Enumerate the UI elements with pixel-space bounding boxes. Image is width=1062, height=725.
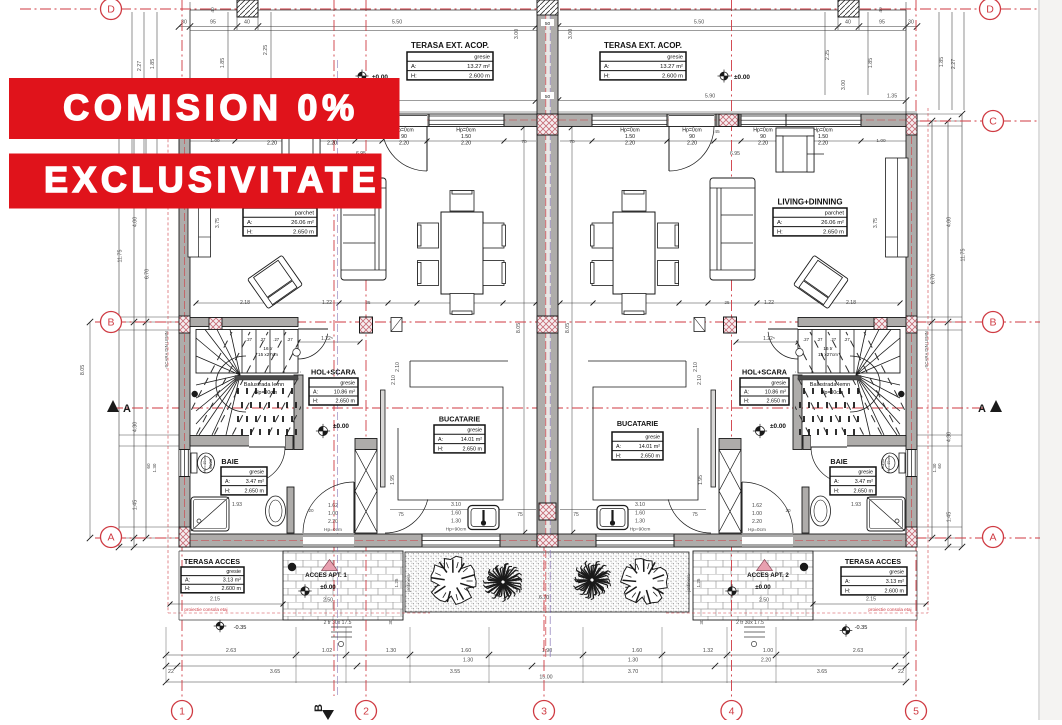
svg-text:1.50: 1.50	[818, 134, 828, 140]
svg-text:1.60: 1.60	[632, 648, 642, 654]
svg-text:75: 75	[398, 512, 404, 518]
svg-text:A:: A:	[616, 444, 621, 450]
svg-text:22: 22	[168, 669, 174, 675]
svg-text:40: 40	[845, 20, 851, 26]
svg-text:30: 30	[699, 619, 704, 624]
svg-text:parchet: parchet	[295, 211, 315, 217]
svg-text:2.20: 2.20	[758, 140, 768, 146]
svg-text:3.00: 3.00	[841, 80, 847, 90]
svg-text:3.75: 3.75	[873, 218, 879, 228]
svg-text:Hp=90cm: Hp=90cm	[821, 390, 843, 396]
svg-text:.27: .27	[246, 337, 252, 342]
svg-text:14.01 m²: 14.01 m²	[461, 437, 482, 443]
svg-text:1.00: 1.00	[763, 648, 773, 654]
svg-text:H:: H:	[604, 73, 610, 79]
svg-text:2.15: 2.15	[210, 597, 220, 603]
svg-text:H:: H:	[313, 398, 318, 404]
svg-text:.27: .27	[287, 337, 293, 342]
svg-text:1.95: 1.95	[390, 475, 396, 485]
svg-text:15 x27cm: 15 x27cm	[818, 352, 838, 357]
svg-text:gresie: gresie	[249, 470, 264, 476]
svg-text:Hp=0cm: Hp=0cm	[813, 128, 832, 134]
svg-text:gresie: gresie	[667, 55, 683, 61]
svg-text:90: 90	[689, 134, 695, 140]
svg-text:1.85: 1.85	[939, 57, 945, 67]
svg-text:3.13 m²: 3.13 m²	[886, 579, 904, 585]
svg-text:gresie: gresie	[467, 428, 482, 434]
svg-text:TERASA ACCES: TERASA ACCES	[845, 557, 901, 566]
svg-text:5: 5	[913, 706, 919, 718]
svg-text:90: 90	[760, 134, 766, 140]
svg-text:3.10: 3.10	[451, 502, 461, 508]
svg-text:2.63: 2.63	[853, 648, 863, 654]
svg-text:H:: H:	[777, 229, 783, 235]
svg-text:TERASA EXT. ACOP.: TERASA EXT. ACOP.	[604, 41, 682, 50]
svg-text:A:: A:	[438, 437, 443, 443]
svg-text:2.20: 2.20	[761, 658, 771, 664]
svg-text:2.15: 2.15	[866, 597, 876, 603]
svg-text:HOL+SCARA: HOL+SCARA	[742, 368, 787, 377]
svg-text:95: 95	[210, 20, 216, 26]
svg-text:3.55: 3.55	[450, 669, 460, 675]
svg-text:.27: .27	[817, 337, 823, 342]
svg-text:90: 90	[401, 134, 407, 140]
svg-text:H:: H:	[185, 586, 190, 592]
svg-text:A:: A:	[834, 479, 839, 485]
svg-text:H:: H:	[411, 73, 417, 79]
svg-text:2.600 m: 2.600 m	[469, 73, 490, 79]
svg-text:2: 2	[363, 706, 369, 718]
svg-text:gresie: gresie	[889, 570, 904, 576]
svg-text:1.00: 1.00	[876, 138, 886, 144]
svg-text:2.25: 2.25	[825, 50, 831, 60]
svg-text:4: 4	[729, 706, 735, 718]
svg-text:gresie: gresie	[858, 470, 873, 476]
svg-text:Hp=40cm: Hp=40cm	[886, 455, 891, 473]
svg-text:60/30: 60/30	[208, 458, 213, 469]
svg-text:jardiniera: jardiniera	[406, 574, 411, 593]
svg-text:2.20: 2.20	[328, 519, 338, 525]
svg-text:1.30: 1.30	[932, 463, 937, 472]
svg-text:D: D	[986, 4, 994, 16]
svg-text:BAIE: BAIE	[830, 457, 847, 466]
svg-text:Hp=0cm: Hp=0cm	[456, 128, 475, 134]
svg-text:2.650 m: 2.650 m	[767, 398, 787, 404]
svg-text:30: 30	[908, 20, 914, 26]
svg-text:2.10: 2.10	[395, 362, 401, 372]
svg-text:2.63: 2.63	[226, 648, 236, 654]
svg-text:1.62: 1.62	[752, 503, 762, 509]
svg-text:A:: A:	[604, 64, 610, 70]
svg-text:10.86 m²: 10.86 m²	[334, 389, 355, 395]
svg-text:2.600 m: 2.600 m	[662, 73, 683, 79]
svg-text:1.50: 1.50	[625, 134, 635, 140]
svg-text:1.30: 1.30	[463, 658, 473, 664]
svg-text:1.93: 1.93	[851, 502, 861, 508]
svg-text:8.05: 8.05	[565, 323, 571, 333]
svg-text:2.50: 2.50	[759, 598, 769, 604]
svg-text:HOL+SCARA: HOL+SCARA	[311, 368, 356, 377]
svg-text:2.20: 2.20	[327, 140, 337, 146]
svg-text:1.62: 1.62	[328, 503, 338, 509]
svg-text:1.50: 1.50	[461, 134, 471, 140]
svg-text:H:: H:	[834, 488, 839, 494]
svg-text:30: 30	[388, 619, 393, 624]
svg-text:Hp=0cm: Hp=0cm	[748, 527, 766, 533]
svg-text:A:: A:	[777, 220, 783, 226]
svg-text:3.00: 3.00	[568, 29, 574, 39]
svg-text:A:: A:	[845, 579, 850, 585]
svg-text:75: 75	[573, 512, 579, 518]
svg-text:LIVING+DINNING: LIVING+DINNING	[777, 198, 842, 207]
svg-text:ACCES APT. 2: ACCES APT. 2	[747, 572, 789, 579]
svg-text:gresie: gresie	[771, 380, 786, 386]
svg-text:2.650 m: 2.650 m	[823, 229, 844, 235]
svg-text:4.30: 4.30	[947, 432, 953, 442]
svg-text:14.01 m²: 14.01 m²	[639, 444, 660, 450]
svg-text:60: 60	[937, 463, 942, 469]
svg-text:.27: .27	[273, 337, 279, 342]
svg-text:15.00: 15.00	[539, 675, 552, 681]
svg-text:TERASA ACCES: TERASA ACCES	[184, 557, 240, 566]
svg-text:.27: .27	[260, 337, 266, 342]
svg-text:50: 50	[545, 21, 551, 27]
svg-text:-0.35: -0.35	[234, 625, 247, 631]
svg-text:3: 3	[541, 706, 547, 718]
svg-text:2.20: 2.20	[461, 140, 471, 146]
svg-text:A:: A:	[411, 64, 417, 70]
svg-text:3.00: 3.00	[514, 29, 520, 39]
svg-text:C: C	[989, 116, 997, 128]
svg-text:95: 95	[879, 20, 885, 26]
svg-text:2.10: 2.10	[391, 375, 397, 385]
svg-text:A:: A:	[313, 389, 318, 395]
svg-text:EXCLUSIVITATE: EXCLUSIVITATE	[44, 159, 380, 200]
svg-text:1.60: 1.60	[461, 648, 471, 654]
svg-text:2 tr 30x 17.5: 2 tr 30x 17.5	[736, 620, 764, 626]
svg-text:2.20: 2.20	[818, 140, 828, 146]
svg-text:26.06 m²: 26.06 m²	[291, 220, 314, 226]
svg-text:1.30: 1.30	[451, 519, 461, 525]
svg-text:3.10: 3.10	[635, 502, 645, 508]
svg-text:±0.00: ±0.00	[770, 423, 786, 430]
svg-text:TERASA EXT. ACOP.: TERASA EXT. ACOP.	[411, 41, 489, 50]
svg-text:COMISION 0%: COMISION 0%	[63, 87, 359, 128]
svg-text:75: 75	[692, 512, 698, 518]
svg-text:Balustrada lemn: Balustrada lemn	[244, 382, 284, 388]
svg-text:70: 70	[569, 139, 575, 145]
svg-text:1.22: 1.22	[322, 300, 332, 306]
svg-text:5.90: 5.90	[705, 94, 715, 100]
svg-text:2.27: 2.27	[137, 61, 143, 71]
svg-text:ACCES APT. 1: ACCES APT. 1	[305, 572, 347, 579]
svg-text:1.60: 1.60	[635, 511, 645, 517]
svg-text:1.00: 1.00	[752, 511, 762, 517]
svg-text:3.47 m²: 3.47 m²	[855, 479, 873, 485]
svg-text:2.20: 2.20	[399, 140, 409, 146]
svg-text:2.10: 2.10	[693, 362, 699, 372]
svg-text:H:: H:	[438, 446, 443, 452]
svg-text:10.86 m²: 10.86 m²	[765, 389, 786, 395]
svg-text:60/30: 60/30	[880, 458, 885, 469]
svg-text:4.00: 4.00	[133, 217, 139, 227]
svg-text:±0.00: ±0.00	[320, 584, 336, 591]
svg-text:45: 45	[714, 129, 720, 135]
svg-text:A:: A:	[744, 389, 749, 395]
svg-text:gresie: gresie	[226, 569, 241, 575]
svg-text:2.20: 2.20	[267, 140, 277, 146]
svg-text:H:: H:	[225, 488, 230, 494]
svg-text:5.50: 5.50	[694, 20, 704, 26]
svg-text:±0.00: ±0.00	[755, 584, 771, 591]
svg-text:Hp=40cm: Hp=40cm	[202, 455, 207, 473]
svg-text:4.00: 4.00	[947, 217, 953, 227]
svg-text:2.600 m: 2.600 m	[222, 586, 242, 592]
svg-text:2.18: 2.18	[240, 300, 250, 306]
svg-text:11.75: 11.75	[118, 250, 124, 263]
svg-text:13.27 m²: 13.27 m²	[660, 64, 683, 70]
svg-text:1.45: 1.45	[947, 512, 953, 522]
svg-text:A: A	[978, 403, 986, 415]
svg-text:Hp=0cm: Hp=0cm	[682, 128, 701, 134]
svg-text:1.35: 1.35	[887, 94, 897, 100]
svg-text:±0.00: ±0.00	[333, 423, 349, 430]
svg-text:H:: H:	[845, 588, 850, 594]
svg-text:1: 1	[179, 706, 185, 718]
svg-text:2.650 m: 2.650 m	[854, 488, 874, 494]
svg-text:5.50: 5.50	[392, 20, 402, 26]
svg-text:A: A	[989, 532, 996, 544]
svg-text:1.93: 1.93	[232, 502, 242, 508]
svg-text:70: 70	[521, 139, 527, 145]
svg-text:3.13 m²: 3.13 m²	[223, 578, 241, 584]
svg-text:jardiniera: jardiniera	[686, 574, 691, 593]
svg-text:22: 22	[898, 669, 904, 675]
svg-text:proiectie consola etaj: proiectie consola etaj	[868, 607, 911, 612]
svg-text:1.25: 1.25	[394, 578, 399, 587]
svg-text:16 tr: 16 tr	[263, 346, 273, 351]
svg-text:D: D	[107, 4, 115, 16]
svg-text:H:: H:	[616, 453, 621, 459]
svg-text:H:: H:	[247, 229, 253, 235]
svg-text:Hp=0cm: Hp=0cm	[753, 128, 772, 134]
svg-text:3.70: 3.70	[628, 669, 638, 675]
svg-text:Hp=0cm: Hp=0cm	[324, 527, 342, 533]
svg-text:1.95: 1.95	[698, 475, 704, 485]
svg-text:2.650 m: 2.650 m	[245, 488, 265, 494]
svg-text:BAIE: BAIE	[221, 457, 238, 466]
svg-text:3.47 m²: 3.47 m²	[246, 479, 264, 485]
svg-text:1.85: 1.85	[868, 58, 874, 68]
svg-text:2.20: 2.20	[687, 140, 697, 146]
svg-text:1.85: 1.85	[150, 59, 156, 69]
svg-text:A:: A:	[247, 220, 253, 226]
svg-text:Balustrada lemn: Balustrada lemn	[810, 382, 850, 388]
svg-text:BUCATARIE: BUCATARIE	[617, 419, 658, 428]
svg-text:B: B	[989, 317, 996, 329]
svg-text:gresie: gresie	[474, 55, 490, 61]
svg-text:6.70: 6.70	[145, 269, 151, 279]
svg-text:2.10: 2.10	[697, 375, 703, 385]
svg-text:.27: .27	[844, 337, 850, 342]
svg-text:BUCATARIE: BUCATARIE	[439, 415, 480, 424]
svg-text:gresie: gresie	[340, 380, 355, 386]
svg-text:3.65: 3.65	[270, 669, 280, 675]
svg-text:proiectie consola etaj: proiectie consola etaj	[184, 607, 227, 612]
svg-text:1.00: 1.00	[328, 511, 338, 517]
svg-text:1.60: 1.60	[451, 511, 461, 517]
svg-text:2.650 m: 2.650 m	[641, 453, 661, 459]
svg-text:25: 25	[725, 300, 730, 305]
svg-text:A: A	[107, 532, 114, 544]
svg-text:2.25: 2.25	[263, 45, 269, 55]
svg-text:2.650 m: 2.650 m	[336, 398, 356, 404]
svg-text:1.85: 1.85	[220, 58, 226, 68]
svg-text:B: B	[107, 317, 114, 329]
svg-text:-0.35: -0.35	[855, 625, 868, 631]
svg-text:A:: A:	[225, 479, 230, 485]
svg-text:1.25: 1.25	[696, 578, 701, 587]
svg-text:2.20: 2.20	[625, 140, 635, 146]
svg-text:60: 60	[146, 463, 151, 469]
svg-text:6.70: 6.70	[931, 274, 937, 284]
svg-text:40: 40	[244, 20, 250, 26]
svg-text:11.75: 11.75	[961, 249, 967, 262]
svg-text:H:: H:	[744, 398, 749, 404]
svg-text:4.30: 4.30	[133, 422, 139, 432]
svg-text:1.22: 1.22	[764, 300, 774, 306]
svg-text:parchet: parchet	[825, 211, 845, 217]
svg-text:3.65: 3.65	[817, 669, 827, 675]
svg-text:A: A	[123, 403, 131, 415]
svg-text:.27: .27	[830, 337, 836, 342]
svg-text:.27: .27	[803, 337, 809, 342]
svg-text:1.45: 1.45	[133, 500, 139, 510]
svg-text:1.30: 1.30	[628, 658, 638, 664]
svg-text:2.20: 2.20	[752, 519, 762, 525]
svg-text:gresie: gresie	[645, 435, 660, 441]
svg-text:2.50: 2.50	[323, 598, 333, 604]
svg-text:2.650 m: 2.650 m	[463, 446, 483, 452]
svg-text:2.650 m: 2.650 m	[293, 229, 314, 235]
svg-text:1.02: 1.02	[322, 648, 332, 654]
svg-text:Hp=90cm: Hp=90cm	[446, 527, 467, 533]
svg-text:8.05: 8.05	[80, 365, 86, 375]
svg-text:1.30: 1.30	[152, 463, 157, 472]
svg-text:Hp=0cm: Hp=0cm	[620, 128, 639, 134]
svg-text:1.30: 1.30	[635, 519, 645, 525]
svg-text:±0.00: ±0.00	[734, 74, 750, 81]
svg-text:3.75: 3.75	[215, 218, 221, 228]
svg-text:Hp=90cm: Hp=90cm	[630, 527, 651, 533]
svg-text:2.27: 2.27	[951, 59, 957, 69]
svg-text:50: 50	[545, 94, 551, 100]
svg-text:Hp=90cm: Hp=90cm	[255, 390, 277, 396]
svg-text:2.600 m: 2.600 m	[885, 588, 905, 594]
svg-text:16 tr: 16 tr	[823, 346, 833, 351]
svg-text:1.30: 1.30	[386, 648, 396, 654]
svg-text:8.05: 8.05	[516, 323, 522, 333]
svg-text:1.32: 1.32	[703, 648, 713, 654]
svg-text:13.27 m²: 13.27 m²	[467, 64, 490, 70]
svg-text:26.06 m²: 26.06 m²	[821, 220, 844, 226]
svg-text:1.90: 1.90	[542, 648, 552, 654]
svg-text:2.18: 2.18	[846, 300, 856, 306]
svg-text:15 x27cm: 15 x27cm	[258, 352, 278, 357]
svg-text:75: 75	[517, 512, 523, 518]
svg-text:A:: A:	[185, 578, 190, 584]
